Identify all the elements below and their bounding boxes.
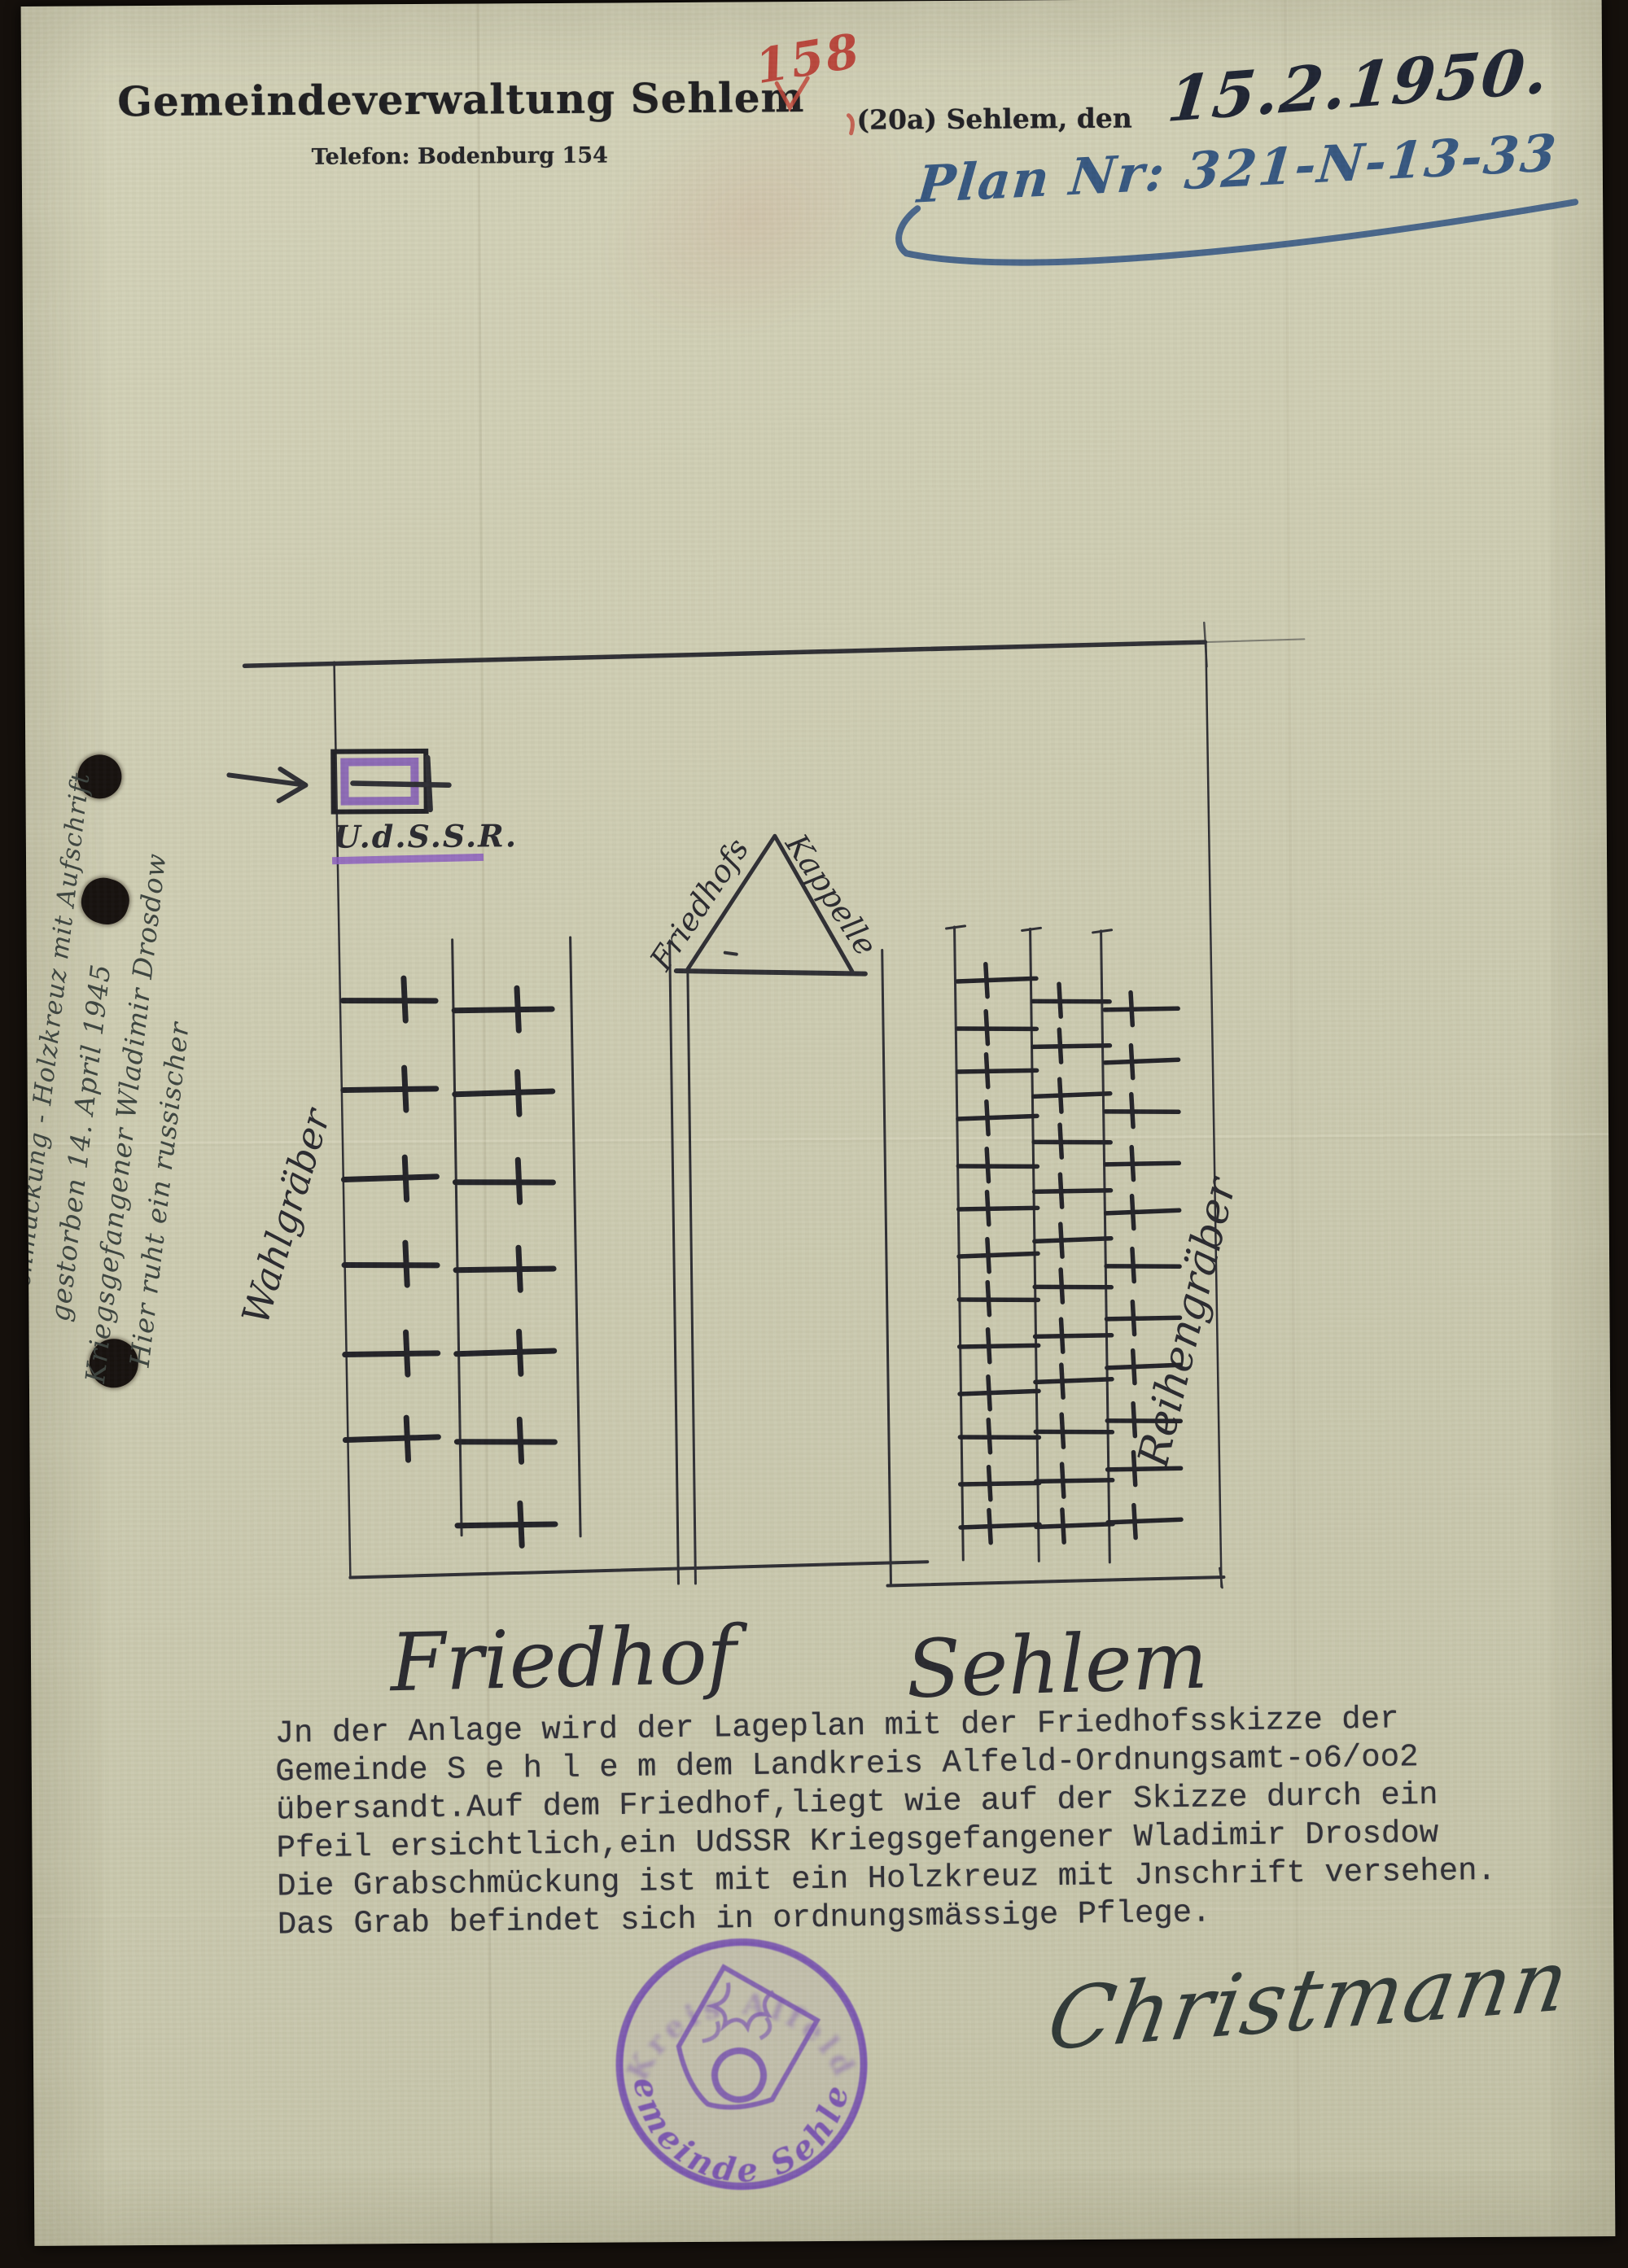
document-page: Gemeindeverwaltung Sehlem Telefon: Boden… [21,0,1616,2246]
row-line [1031,929,1039,1561]
grave-cross [454,1009,552,1011]
grave-cross [344,1177,436,1180]
grave-cross [1105,1008,1178,1010]
ussr-label: U.d.S.S.R. [334,817,518,854]
grave-cross [987,1102,988,1134]
grave-cross [957,978,1036,981]
grave-cross [988,1420,990,1453]
chapel-base [676,970,865,975]
grave-cross [987,1239,989,1272]
grave-cross [958,1165,1037,1167]
grave-cross [989,1467,991,1500]
grave-cross [960,1436,1039,1438]
grave-cross [1035,1191,1111,1192]
grave-cross [961,1483,1039,1484]
grave-cross [1133,1351,1135,1383]
grave-cross [1035,1239,1111,1242]
grave-cross [1035,1335,1112,1337]
grave-cross [1105,1060,1179,1063]
chapel-tick [725,953,737,955]
grave-cross [1061,1224,1062,1256]
grave-cross [1036,1480,1113,1482]
scanned-document: { "colors": { "paper": "#cdccb2", "ink_b… [0,0,1628,2268]
grave-cross [406,1332,408,1374]
grave-cross [518,1072,519,1114]
typed-body-text: Jn der Anlage wird der Lageplan mit der … [274,1698,1547,1944]
sehlem-bottom-line [887,1577,1223,1586]
grave-cross [457,1441,554,1443]
grave-cross [987,1283,989,1315]
row-line-cap [1022,928,1041,930]
row-line [571,937,580,1536]
grave-cross [406,1418,408,1460]
cemetery-sketch: Friedhofs Kappelle U.d.S.S.R. Wahlgräber… [147,600,1538,1747]
grave-cross [1131,1046,1132,1078]
row-line [453,940,462,1536]
grave-cross [519,1331,521,1374]
sketch-top-border [244,642,1205,666]
friedhof-bottom-line [350,1562,927,1577]
grave-cross [1062,1510,1064,1542]
grave-cross [519,1248,520,1290]
grave-cross [518,1160,519,1202]
path-line [688,972,696,1584]
grave-cross [405,1157,406,1200]
grave-cross [344,1265,437,1266]
wahlgraeber-label: Wahlgräber [233,1102,339,1329]
grave-cross [1033,1001,1109,1003]
grave-cross [519,1419,521,1462]
ussr-label-underline [332,854,484,864]
grave-cross [457,1351,554,1354]
plan-number-underline-swoosh [899,202,1576,263]
grave-cross [1107,1420,1180,1422]
grave-cross [959,1208,1038,1209]
grave-cross [961,1524,1039,1527]
grave-cross [1035,1431,1112,1433]
grave-cross [960,1345,1039,1347]
grave-cross [987,1055,988,1087]
grave-cross [1106,1210,1179,1213]
grave-cross [1034,1094,1110,1097]
municipal-stamp: Gemeinde Sehlem Kreis Alfeld [593,1912,904,2222]
grave-cross [405,1243,407,1285]
grave-cross [986,1012,987,1044]
grave-cross [1131,1147,1133,1180]
grave-cross [1133,1404,1135,1436]
sketch-right-border [1206,644,1221,1587]
grave-cross [345,1353,438,1355]
sketch-top-border-extension [1205,639,1304,642]
grave-cross [1033,1046,1109,1047]
grave-cross [1036,1524,1113,1527]
grave-cross [1061,1414,1063,1447]
red-check-mark [777,78,807,107]
grave-cross [1060,1174,1061,1207]
grave-cross [959,1299,1038,1300]
red-comma-mark [848,116,852,133]
grave-cross [1132,1196,1134,1229]
grave-cross [988,1377,990,1409]
grave-cross [1062,1464,1064,1497]
grave-crosses [343,963,1181,1546]
grave-cross [1132,1302,1134,1335]
grave-cross [345,1437,438,1440]
grave-cross [1131,1095,1133,1127]
grave-cross [1106,1318,1179,1319]
grave-cross [960,1391,1039,1394]
grave-cross [1105,1111,1179,1112]
grave-cross [1035,1379,1112,1383]
grave-cross [986,964,987,997]
header-ink-strokes [21,0,1616,609]
grave-cross [1060,1079,1061,1112]
grave-cross [1061,1365,1063,1397]
row-line [955,927,964,1560]
grave-cross [1107,1365,1180,1368]
grave-cross [958,1116,1037,1119]
grave-cross [1059,1029,1061,1062]
grave-cross [1108,1468,1181,1470]
grave-cross [1108,1519,1181,1523]
grave-cross [1134,1505,1136,1538]
grave-cross [1059,984,1061,1016]
grave-cross [957,1028,1036,1029]
friedhof-label: Friedhof [387,1609,750,1710]
grave-cross [456,1269,554,1270]
grave-cross [455,1091,553,1095]
grave-cross [517,988,519,1030]
grave-cross [987,1149,988,1182]
grave-cross [1035,1287,1111,1288]
grave-cross [959,1253,1038,1256]
chapel-label-left: Friedhofs [642,832,755,977]
grave-cross [344,1089,436,1090]
row-line-cap [947,926,965,929]
grave-cross [1131,993,1132,1025]
grave-cross [1106,1265,1179,1267]
path-line [670,942,679,1584]
grave-cross [1133,1453,1135,1485]
grave-cross [455,1182,553,1183]
grave-cross [1060,1125,1061,1157]
grave-cross [1061,1319,1062,1352]
chapel-label-right: Kappelle [778,827,884,962]
grave-cross [987,1192,989,1225]
reihengraeber-label: Reihengräber [1129,1171,1247,1472]
grave-cross [1061,1269,1062,1302]
grave-cross [988,1330,990,1362]
sehlem-label: Sehlem [904,1614,1209,1716]
pointer-arrow-icon [229,769,305,802]
grave-cross [1105,1163,1179,1165]
grave-cross [958,1070,1037,1072]
grave-cross [1034,1142,1110,1143]
grave-cross [405,1068,406,1110]
grave-cross [343,1000,435,1002]
path-line [882,950,891,1584]
grave-cross [457,1524,555,1526]
grave-cross [520,1503,522,1545]
row-line-cap [1093,930,1112,933]
signature: Christmann [1041,1929,1578,2069]
grave-cross [989,1510,991,1543]
grave-cross [404,978,405,1020]
grave-cross [1132,1249,1134,1282]
